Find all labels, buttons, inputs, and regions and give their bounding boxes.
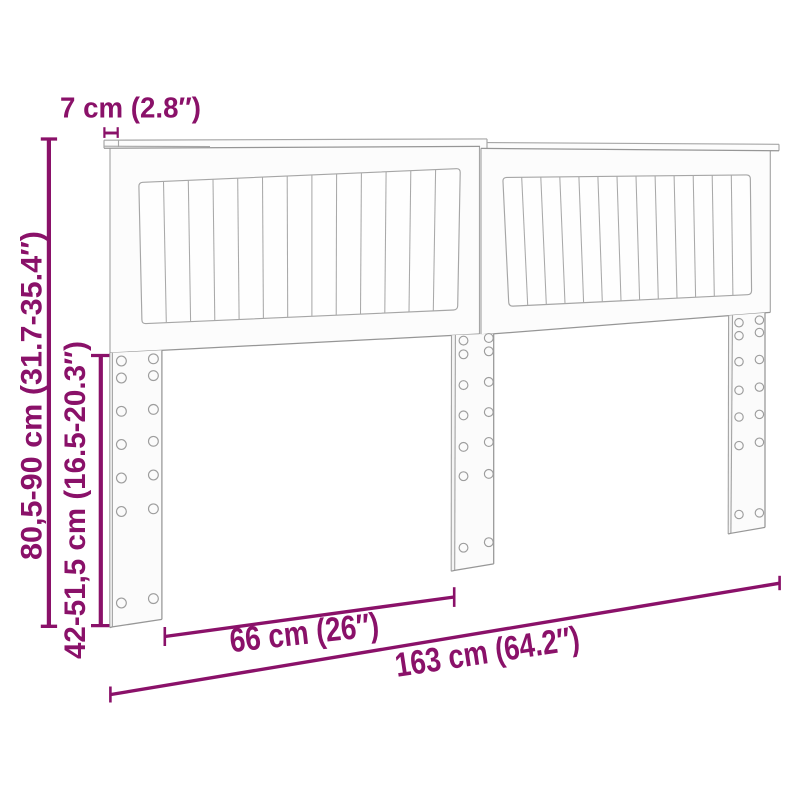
- svg-text:42-51,5 cm (16.5-20.3″): 42-51,5 cm (16.5-20.3″): [59, 341, 92, 659]
- svg-text:7 cm (2.8″): 7 cm (2.8″): [60, 93, 201, 125]
- svg-text:80,5-90 cm (31.7-35.4″): 80,5-90 cm (31.7-35.4″): [16, 231, 49, 560]
